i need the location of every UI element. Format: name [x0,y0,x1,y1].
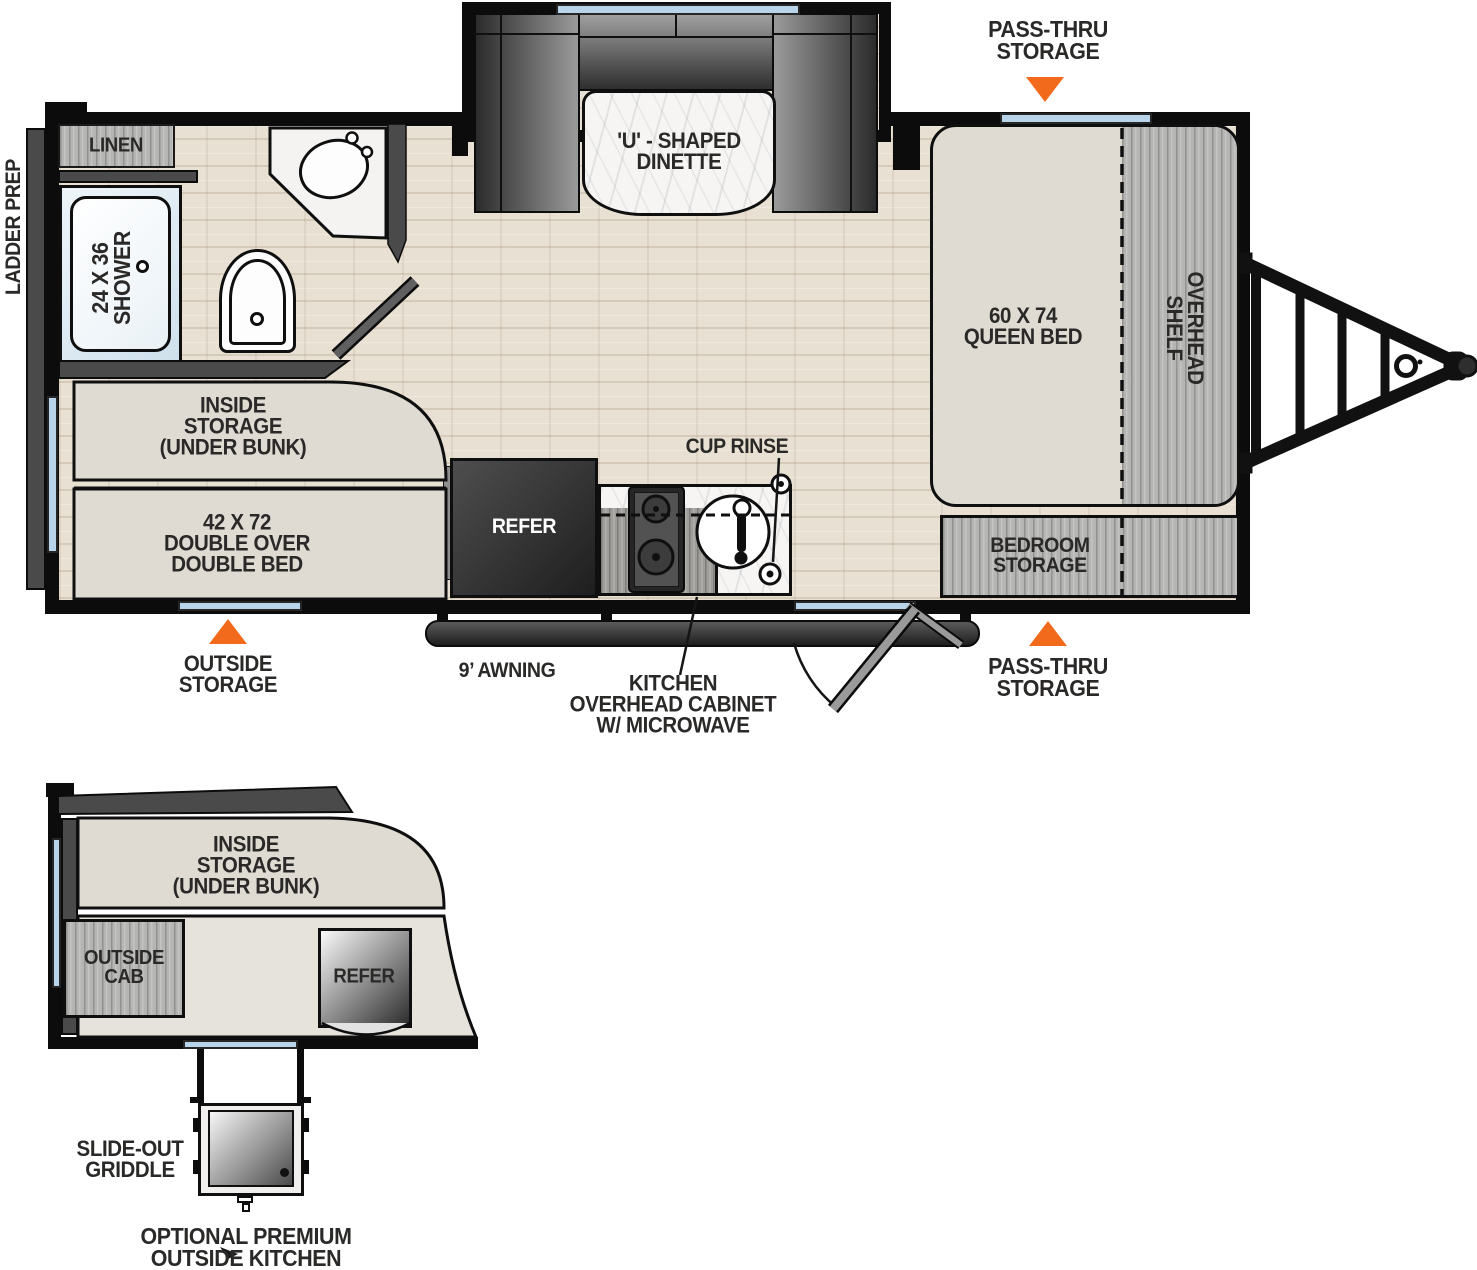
floorplan-canvas: PASS-THRU STORAGE LADDER PREP LINEN 24 X… [0,0,1477,1270]
detail-refer-label: REFER [333,968,394,987]
outside-cab-label: OUTSIDE CAB [84,949,164,987]
awning-label: 9’ AWNING [459,661,556,681]
pass-thru-arrow-bottom [1029,621,1067,646]
pass-thru-storage-bottom-label: PASS-THRU STORAGE [988,656,1108,700]
burner-center [652,553,660,561]
optional-outside-kitchen-label: OPTIONAL PREMIUM OUTSIDE KITCHEN [140,1226,351,1270]
overhead-shelf-label: OVERHEAD SHELF [1163,272,1205,385]
kitchen-faucet-stem [737,514,746,552]
shower-label: 24 X 36 SHOWER [90,231,134,325]
outside-storage-label: OUTSIDE STORAGE [179,654,277,696]
bedroom-storage-label: BEDROOM STORAGE [990,536,1089,576]
double-bed-label: 42 X 72 DOUBLE OVER DOUBLE BED [164,513,310,576]
ladder-prep-label: LADDER PREP [4,159,24,295]
dinette-label: 'U' - SHAPED DINETTE [617,131,741,173]
refer-label: REFER [492,517,556,537]
bathroom-door [336,281,415,355]
entry-door-swing-arc [794,643,836,707]
kitchen-faucet-base [735,552,748,565]
outside-storage-arrow [209,619,247,644]
queen-bed-label: 60 X 74 QUEEN BED [964,306,1082,348]
hitch-jack-icon [1397,357,1416,376]
hitch-jack-dot [1418,360,1423,365]
cup-rinse-pointer [773,458,779,562]
kitchen-cabinet-label: KITCHEN OVERHEAD CABINET W/ MICROWAVE [570,674,777,737]
detail-inside-storage-label: INSIDE STORAGE (UNDER BUNK) [173,835,320,898]
cup-rinse-dot [767,571,774,578]
detail-refer-door-arc [322,1023,410,1035]
hitch-a-frame-icon [1238,253,1477,473]
slide-out-griddle-label: SLIDE-OUT GRIDDLE [77,1139,184,1181]
entry-door [833,609,915,709]
burner-center [653,506,659,512]
pass-thru-storage-top-label: PASS-THRU STORAGE [988,19,1108,63]
inside-storage-label: INSIDE STORAGE (UNDER BUNK) [160,396,307,459]
linen-label: LINEN [89,137,143,156]
kitchen-cabinet-pointer [680,597,697,675]
pass-thru-arrow-top [1026,77,1064,102]
cup-rinse-label: CUP RINSE [686,437,789,457]
counter-knob-dot [778,481,784,487]
